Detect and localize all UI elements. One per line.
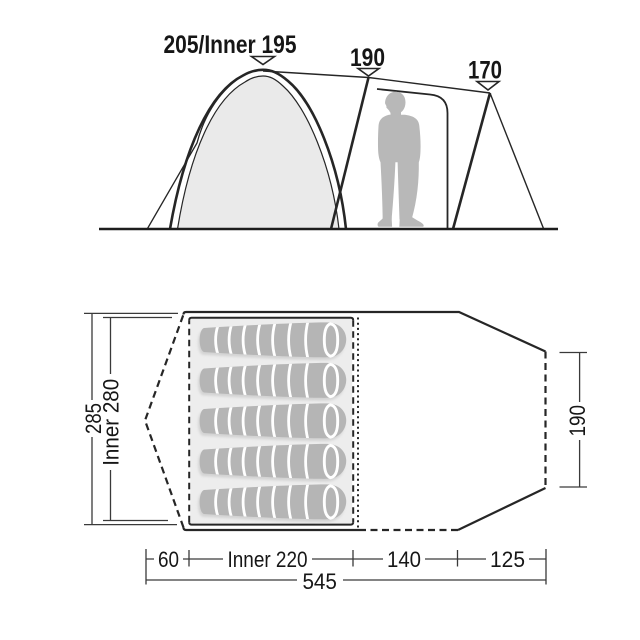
svg-text:140: 140	[387, 547, 421, 572]
svg-text:205/Inner 195: 205/Inner 195	[164, 31, 297, 59]
svg-text:170: 170	[468, 57, 502, 85]
svg-text:190: 190	[565, 405, 590, 437]
svg-text:125: 125	[490, 547, 525, 572]
svg-text:Inner 280: Inner 280	[99, 379, 124, 466]
svg-text:190: 190	[350, 44, 385, 72]
svg-text:60: 60	[158, 547, 179, 572]
svg-text:545: 545	[302, 569, 337, 594]
svg-text:Inner 220: Inner 220	[228, 547, 308, 572]
